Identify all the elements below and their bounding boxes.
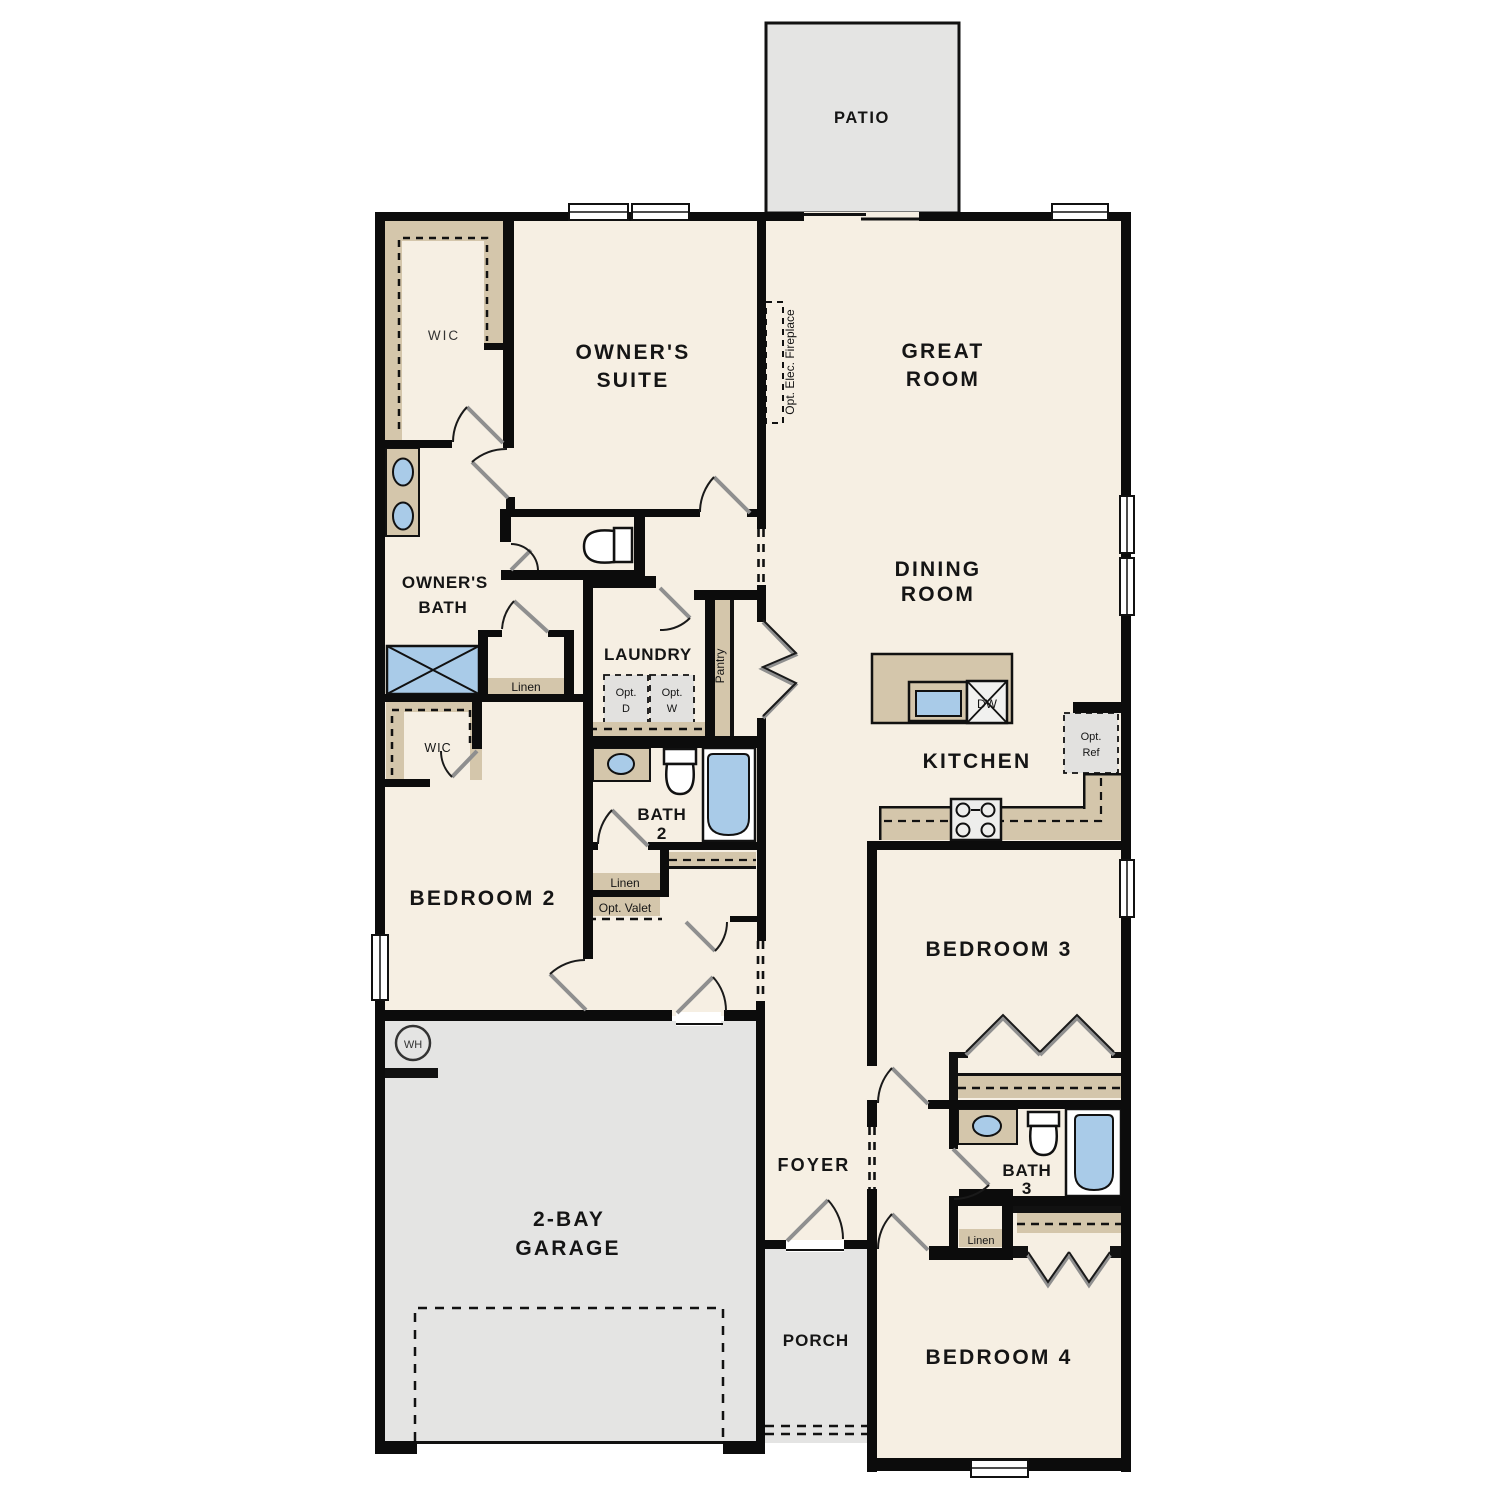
svg-text:BEDROOM 4: BEDROOM 4 [926, 1346, 1073, 1369]
svg-text:Ref: Ref [1082, 747, 1100, 759]
svg-text:GARAGE: GARAGE [515, 1237, 620, 1260]
svg-text:Opt.: Opt. [616, 687, 637, 699]
svg-text:2-BAY: 2-BAY [533, 1208, 605, 1231]
svg-text:Opt. Valet: Opt. Valet [599, 901, 652, 915]
svg-text:FOYER: FOYER [777, 1155, 850, 1175]
svg-text:ROOM: ROOM [901, 583, 975, 606]
svg-text:ROOM: ROOM [906, 368, 980, 391]
svg-text:BEDROOM 3: BEDROOM 3 [926, 938, 1073, 961]
svg-text:2: 2 [657, 824, 667, 843]
svg-text:BEDROOM 2: BEDROOM 2 [410, 887, 557, 910]
svg-text:BATH: BATH [1002, 1161, 1051, 1180]
svg-text:Linen: Linen [610, 876, 639, 890]
svg-text:Opt. Elec. Fireplace: Opt. Elec. Fireplace [783, 309, 797, 415]
svg-text:PORCH: PORCH [783, 1331, 849, 1350]
svg-text:Opt.: Opt. [662, 687, 683, 699]
svg-text:Linen: Linen [968, 1235, 995, 1247]
svg-text:DW: DW [977, 697, 998, 711]
svg-text:SUITE: SUITE [597, 369, 670, 392]
svg-text:OWNER'S: OWNER'S [402, 573, 488, 592]
svg-text:BATH: BATH [418, 598, 467, 617]
svg-text:GREAT: GREAT [902, 340, 985, 363]
svg-text:Pantry: Pantry [713, 649, 727, 684]
svg-text:BATH: BATH [637, 805, 686, 824]
svg-text:PATIO: PATIO [834, 109, 890, 127]
svg-text:WIC: WIC [424, 741, 451, 755]
svg-text:LAUNDRY: LAUNDRY [604, 645, 692, 664]
svg-text:3: 3 [1022, 1179, 1032, 1198]
svg-text:DINING: DINING [895, 558, 982, 581]
svg-text:W: W [667, 703, 678, 715]
svg-text:OWNER'S: OWNER'S [576, 341, 691, 364]
svg-text:D: D [622, 703, 630, 715]
svg-text:WIC: WIC [428, 328, 460, 343]
svg-text:WH: WH [404, 1039, 422, 1051]
svg-text:Linen: Linen [511, 680, 540, 694]
svg-text:KITCHEN: KITCHEN [923, 750, 1032, 773]
svg-text:Opt.: Opt. [1081, 731, 1102, 743]
